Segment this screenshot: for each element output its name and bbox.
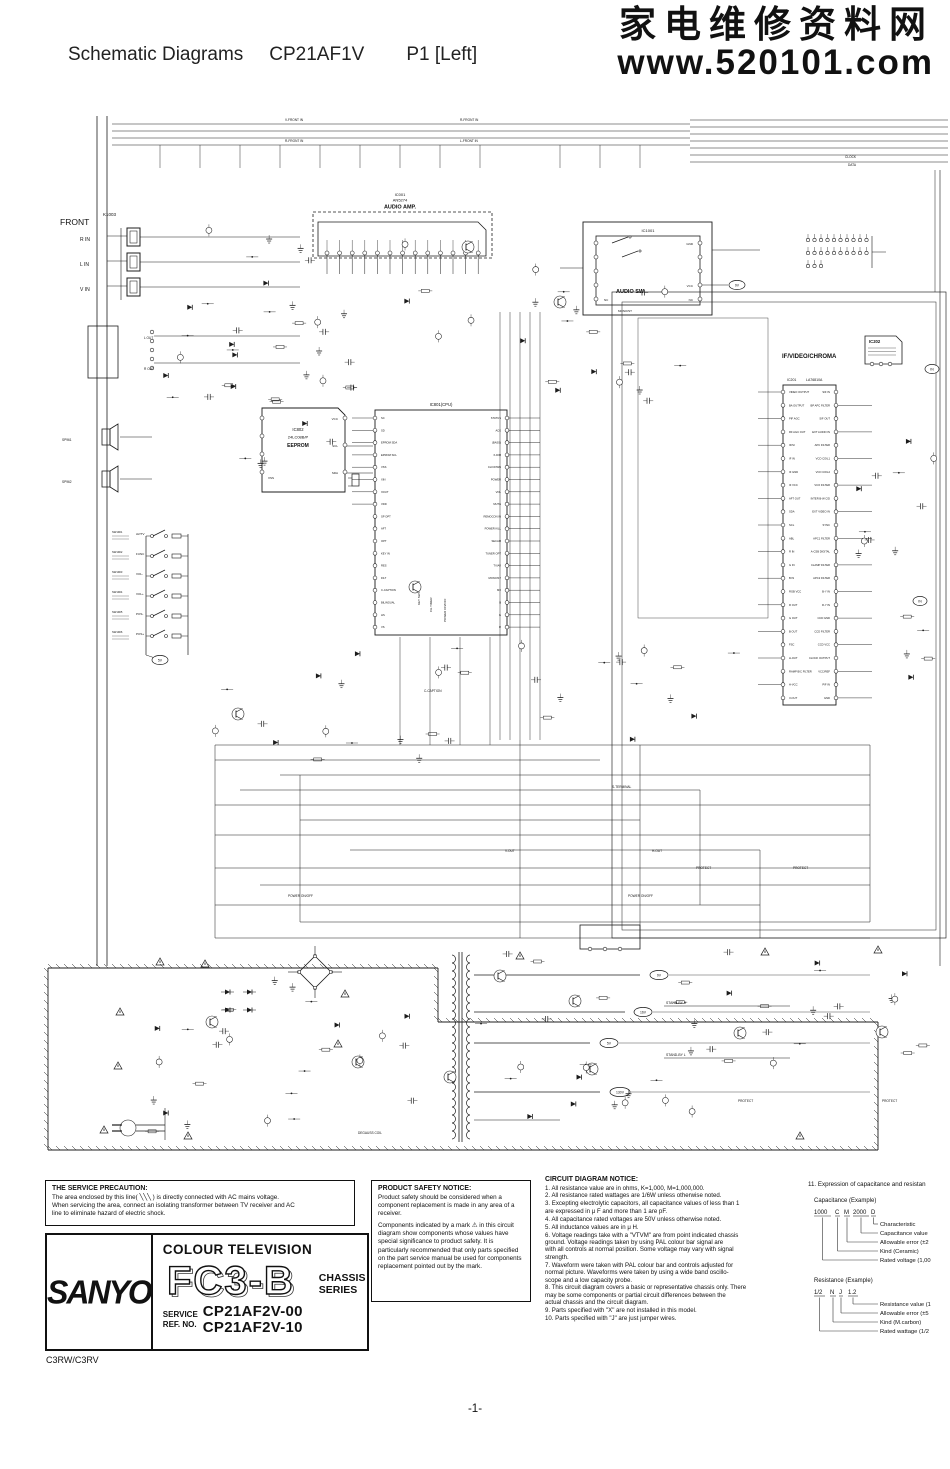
svg-text:SW1901: SW1901 [112,530,123,534]
svg-text:PROTECT: PROTECT [696,866,711,870]
svg-text:H-OUT: H-OUT [789,656,798,660]
svg-text:SD: SD [381,428,385,432]
svg-text:SDA: SDA [332,471,338,475]
svg-text:VOL-: VOL- [136,572,143,576]
svg-text:VCO COIL2: VCO COIL2 [816,470,831,474]
svg-text:VCC/REF: VCC/REF [818,669,830,673]
left-bus-wires [97,116,127,966]
notice-item: 8. This circuit diagram covers a basic o… [545,1284,805,1306]
notice-item: 5. All inductance values are in μ H. [545,1224,805,1231]
product-safety-para2: Components indicated by a mark ⚠ in this… [378,1222,524,1272]
svg-text:XOUT: XOUT [381,490,389,494]
svg-text:SW1906: SW1906 [112,630,123,634]
notice-item: 2. All resistance rated wattages are 1/6… [545,1192,805,1199]
ic201-if-video-chroma: IC201LA76810AVIDEO OUTPUTBA OUTPUTPIF AG… [758,378,872,705]
svg-text:V-FRONT IN: V-FRONT IN [285,118,304,122]
svg-text:SW1902: SW1902 [112,550,123,554]
svg-text:RF AGC OUT: RF AGC OUT [789,430,806,434]
svg-text:SW1905: SW1905 [112,610,123,614]
svg-text:H-VCC: H-VCC [789,683,798,687]
svg-text:Resistance (Example): Resistance (Example) [814,1278,873,1284]
svg-text:MX: MX [497,588,501,592]
svg-text:R OUT: R OUT [789,603,798,607]
svg-text:11. Expression of capacitance: 11. Expression of capacitance and resist… [808,1181,926,1188]
svg-text:Allowable error (±2: Allowable error (±2 [880,1240,929,1246]
svg-text:MONO/ST: MONO/ST [488,576,501,580]
svg-text:SDA: SDA [789,510,795,514]
product-safety-para1: Product safety should be considered when… [378,1194,524,1219]
circuit-notice-title: CIRCUIT DIAGRAM NOTICE: [545,1176,805,1183]
svg-text:XIN: XIN [381,478,386,482]
svg-text:KEY IN: KEY IN [381,551,390,555]
svg-text:BILINGUAL: BILINGUAL [381,601,396,605]
svg-text:24LC08B/P: 24LC08B/P [288,435,309,440]
svg-text:AN5274: AN5274 [393,198,408,203]
svg-text:D: D [871,1210,876,1216]
svg-text:SIF OUT: SIF OUT [819,417,830,421]
svg-text:​FC3-B: ​FC3-B [167,1259,295,1303]
svg-text:CLAMP FILTER: CLAMP FILTER [811,563,830,567]
transistors [206,241,888,1083]
svg-text:FUNC: FUNC [136,552,145,556]
chassis-code: C3RW/C3RV [46,1355,99,1365]
svg-text:APC2 FILTER: APC2 FILTER [813,576,830,580]
chassis-series-label: CHASSIS SERIES [319,1273,366,1296]
svg-text:R-Y IN: R-Y IN [822,603,830,607]
svg-text:Kind (Ceramic): Kind (Ceramic) [880,1249,919,1255]
svg-text:EPROM SDA: EPROM SDA [381,441,397,445]
svg-text:IF VCC: IF VCC [789,483,798,487]
svg-text:POS+: POS+ [136,632,144,636]
chassis-name-art: ​FC3-B ​FC3-B [163,1258,315,1304]
svg-text:IN: IN [918,600,922,604]
product-safety-box: PRODUCT SAFETY NOTICE: Product safety sh… [371,1180,531,1302]
product-safety-title: PRODUCT SAFETY NOTICE: [378,1185,524,1192]
brand-block: SANYO COLOUR TELEVISION ​FC3-B ​FC3-B CH… [45,1233,369,1351]
svg-text:B-Y IN: B-Y IN [822,590,830,594]
svg-text:RGB VCC: RGB VCC [789,590,801,594]
svg-text:R OUT: R OUT [144,367,154,371]
notice-item: 3. Excepting electrolytic capacitors, al… [545,1200,805,1215]
svg-text:KEY SW: KEY SW [417,593,421,605]
page-number: -1- [0,1403,950,1415]
svg-text:POWER ON/OFF: POWER ON/OFF [443,598,447,622]
ic1001-audio-sw: IC1001GNDVCCNCNCAUDIO SW9VMONO/ST [560,222,760,315]
svg-text:IC001: IC001 [395,192,406,197]
svg-text:GND: GND [686,242,694,246]
svg-text:SC: SC [381,416,385,420]
svg-text:R-FRONT IN: R-FRONT IN [460,118,479,122]
svg-text:STAND-BY L: STAND-BY L [666,1053,686,1057]
brand-info-cell: COLOUR TELEVISION ​FC3-B ​FC3-B CHASSIS … [153,1235,374,1349]
service-ref-row: SERVICE REF. NO. CP21AF2V-00 CP21AF2V-10 [163,1304,366,1336]
svg-text:J: J [839,1290,842,1296]
svg-text:AFT: AFT [381,527,386,531]
svg-text:X-DIM: X-DIM [493,453,501,457]
product-type-label: COLOUR TELEVISION [163,1242,366,1257]
svg-text:V-OUT: V-OUT [789,696,798,700]
svg-text:Characteristic: Characteristic [880,1222,916,1228]
svg-text:(BASS): (BASS) [492,441,501,445]
svg-text:1.2: 1.2 [848,1290,857,1296]
svg-text:R-FRONT IN: R-FRONT IN [285,139,304,143]
svg-text:CCD VCC: CCD VCC [818,643,830,647]
svg-text:GND: GND [824,696,830,700]
expression-diagram: 11. Expression of capacitance and resist… [806,1176,950,1371]
svg-text:Resistance value (1: Resistance value (1 [880,1302,931,1308]
svg-text:IC802: IC802 [292,427,304,432]
svg-text:Capacitance value: Capacitance value [880,1231,928,1237]
svg-text:STATUS: STATUS [491,416,501,420]
svg-text:FRONT: FRONT [60,217,89,227]
svg-text:K1003: K1003 [103,212,117,217]
notice-item: 4. All capacitance rated voltages are 50… [545,1216,805,1223]
svg-text:FILT: FILT [381,576,387,580]
svg-text:C-CAPTION: C-CAPTION [381,588,396,592]
svg-text:VCC: VCC [332,417,339,421]
notice-item: 1. All resistance value are in ohms, K=1… [545,1185,805,1192]
ic202-regulator: IC202IF/VIDEO/CHROMA [782,336,902,366]
svg-text:IC801(CPU): IC801(CPU) [430,402,453,407]
service-model-numbers: CP21AF2V-00 CP21AF2V-10 [203,1304,303,1336]
components-scatter [145,224,937,1132]
svg-text:DATA: DATA [848,163,857,167]
svg-text:SP962: SP962 [62,480,72,484]
svg-text:IC202: IC202 [869,339,881,344]
svg-text:IF IN: IF IN [789,457,795,461]
svg-text:B IN: B IN [789,576,794,580]
svg-text:IC201: IC201 [787,378,796,382]
svg-text:VSS: VSS [381,465,387,469]
svg-text:IF/VIDEO/CHROMA: IF/VIDEO/CHROMA [782,354,837,360]
svg-text:1/2: 1/2 [814,1290,823,1296]
svg-text:C: C [835,1210,840,1216]
svg-text:SP OPT: SP OPT [381,514,391,518]
svg-text:SW1904: SW1904 [112,590,123,594]
svg-text:A-CSB DIGITAL: A-CSB DIGITAL [811,550,831,554]
front-switches: SW1901AV/TVSW1902FUNCSW1903VOL-SW1904VOL… [112,530,188,665]
svg-text:S-TERMINAL: S-TERMINAL [612,785,632,789]
svg-text:CCD GND: CCD GND [817,616,830,620]
svg-text:SW1903: SW1903 [112,570,123,574]
svg-text:Allowable error (±5: Allowable error (±5 [880,1311,929,1317]
svg-text:SCL: SCL [332,444,338,448]
headphone-jack: L OUTR OUT [88,326,300,378]
svg-text:Capacitance (Example): Capacitance (Example) [814,1198,876,1204]
svg-text:AV/TV: AV/TV [136,532,144,536]
svg-text:POWER KILL: POWER KILL [485,527,502,531]
svg-text:IN: IN [930,368,934,372]
svg-text:BA OUTPUT: BA OUTPUT [789,403,805,407]
svg-text:VDD: VDD [381,502,387,506]
schematic-page: Schematic DiagramsCP21AF1VP1 [Left] 家电维修… [0,0,950,1469]
svg-text:FSC: FSC [789,643,794,647]
svg-text:ABL: ABL [789,536,795,540]
chassis-row: ​FC3-B ​FC3-B CHASSIS SERIES [163,1258,366,1304]
svg-text:Kind (M.carbon): Kind (M.carbon) [880,1320,921,1326]
svg-text:EXT AUDIO IN: EXT AUDIO IN [812,430,830,434]
sanyo-logo: SANYO [47,1273,151,1312]
notice-item: 10. Parts specified with "J" are just ju… [545,1315,805,1322]
svg-text:INTER B-W C/D: INTER B-W C/D [811,496,830,500]
svg-text:BP APC FILTER: BP APC FILTER [811,403,831,407]
svg-text:AFT OUT: AFT OUT [789,496,801,500]
svg-text:2000: 2000 [853,1210,867,1216]
svg-text:OPT: OPT [381,539,387,543]
svg-text:PIF IN: PIF IN [822,683,830,687]
svg-text:SCL: SCL [789,523,795,527]
svg-text:MONO/ST: MONO/ST [618,309,632,313]
svg-text:CH.TIMER: CH.TIMER [429,597,433,612]
svg-text:Rated wattage (1/2: Rated wattage (1/2 [880,1329,929,1335]
svg-text:APC FILTER: APC FILTER [815,443,830,447]
svg-text:POWER: POWER [491,478,501,482]
svg-text:REMOCON IN: REMOCON IN [484,514,502,518]
svg-text:PROTECT: PROTECT [882,1099,897,1103]
svg-text:EPROM SCL: EPROM SCL [381,453,397,457]
svg-text:IF/SI: IF/SI [789,443,795,447]
svg-text:EXT VIDEO IN: EXT VIDEO IN [812,510,830,514]
svg-text:CLOCK: CLOCK [845,155,857,159]
svg-text:VSS: VSS [268,476,274,480]
svg-text:VOL: VOL [496,490,502,494]
svg-text:PIF AGC: PIF AGC [789,417,800,421]
svg-text:G IN: G IN [789,563,795,567]
svg-text:POS-: POS- [136,612,143,616]
svg-text:16V: 16V [640,1011,647,1015]
notice-item: 6. Voltage readings take with a "VTVM" a… [545,1232,805,1262]
svg-text:L-FRONT IN: L-FRONT IN [460,139,479,143]
notice-item: 9. Parts specified with "X" are not inst… [545,1307,805,1314]
svg-text:L OUT: L OUT [144,336,153,340]
svg-text:AUDIO AMP.: AUDIO AMP. [384,205,417,211]
svg-text:VCO FILTER: VCO FILTER [814,483,830,487]
svg-text:R IN: R IN [789,550,794,554]
svg-text:HS: HS [381,613,385,617]
svg-text:ACK: ACK [495,428,501,432]
svg-text:VS: VS [381,625,385,629]
svg-text:VCC: VCC [687,284,694,288]
service-ref-label: SERVICE REF. NO. [163,1310,198,1330]
brand-logo-cell: SANYO [47,1235,153,1349]
svg-text:VIDEO OUTPUT: VIDEO OUTPUT [789,390,810,394]
tuner-connector-grid [806,234,886,268]
svg-text:PROTECT: PROTECT [793,866,808,870]
front-input-jacks: FRONTK1003R INL INV IN [60,212,300,300]
svg-text:5V: 5V [607,1042,612,1046]
svg-text:130V: 130V [616,1091,625,1095]
svg-text:SIF IN: SIF IN [822,390,830,394]
svg-text:R IN: R IN [80,237,90,243]
svg-text:VOL+: VOL+ [136,592,144,596]
svg-text:POWER ON/OFF: POWER ON/OFF [288,894,313,898]
svg-text:Rated voltage (1,00: Rated voltage (1,00 [880,1258,931,1264]
svg-text:SP961: SP961 [62,438,72,442]
svg-text:NC: NC [689,298,694,302]
svg-text:1000: 1000 [814,1210,828,1216]
service-precaution-text: The area enclosed by this line( ╲╲╲ ) is… [52,1194,348,1219]
svg-text:H-OUT: H-OUT [652,849,662,853]
svg-text:M: M [844,1210,849,1216]
svg-text:B OUT: B OUT [789,629,798,633]
svg-text:G OUT: G OUT [789,616,798,620]
ic001-audio-amp: IC001AN5274AUDIO AMP. [313,192,492,274]
svg-text:5V: 5V [158,659,163,663]
svg-text:NC: NC [604,298,609,302]
svg-text:C-CAPTION: C-CAPTION [424,689,442,693]
svg-text:VCO COIL1: VCO COIL1 [816,457,831,461]
svg-text:IC1001: IC1001 [642,228,656,233]
svg-text:IF GND: IF GND [789,470,798,474]
svg-text:CH DOWN: CH DOWN [488,465,501,469]
svg-text:RAMP B/C FILTER: RAMP B/C FILTER [789,669,812,673]
svg-text:RES: RES [381,564,387,568]
power-supply-section: 9V16V5V130VSTAND-BY HSTAND-BY LPROTECTPR… [44,925,897,1150]
svg-text:TUNER OPT: TUNER OPT [485,551,501,555]
svg-text:CCD FILTER: CCD FILTER [814,629,830,633]
svg-text:V IN: V IN [80,287,90,293]
service-precaution-box: THE SERVICE PRECAUTION: The area enclose… [45,1180,355,1226]
circuit-notice-list: 1. All resistance value are in ohms, K=1… [545,1185,805,1323]
svg-text:SYNC: SYNC [823,523,831,527]
svg-text:9V: 9V [735,284,740,288]
service-precaution-title: THE SERVICE PRECAUTION: [52,1185,348,1192]
svg-text:PROTECT: PROTECT [738,1099,753,1103]
svg-text:DEGAUSS COIL: DEGAUSS COIL [358,1131,382,1135]
svg-text:POWER ON/OFF: POWER ON/OFF [628,894,653,898]
svg-text:CLOCK OUTPUT: CLOCK OUTPUT [809,656,830,660]
svg-text:LA76810A: LA76810A [806,378,823,382]
svg-text:L IN: L IN [80,262,89,268]
svg-text:APC1 FILTER: APC1 FILTER [813,536,830,540]
circuit-notice-box: CIRCUIT DIAGRAM NOTICE: 1. All resistanc… [545,1176,805,1323]
svg-text:N: N [830,1290,834,1296]
svg-text:EEPROM: EEPROM [287,443,309,449]
svg-text:9V: 9V [657,974,662,978]
notice-item: 7. Waveform were taken with PAL colour b… [545,1262,805,1284]
svg-text:V-OUT: V-OUT [505,849,515,853]
